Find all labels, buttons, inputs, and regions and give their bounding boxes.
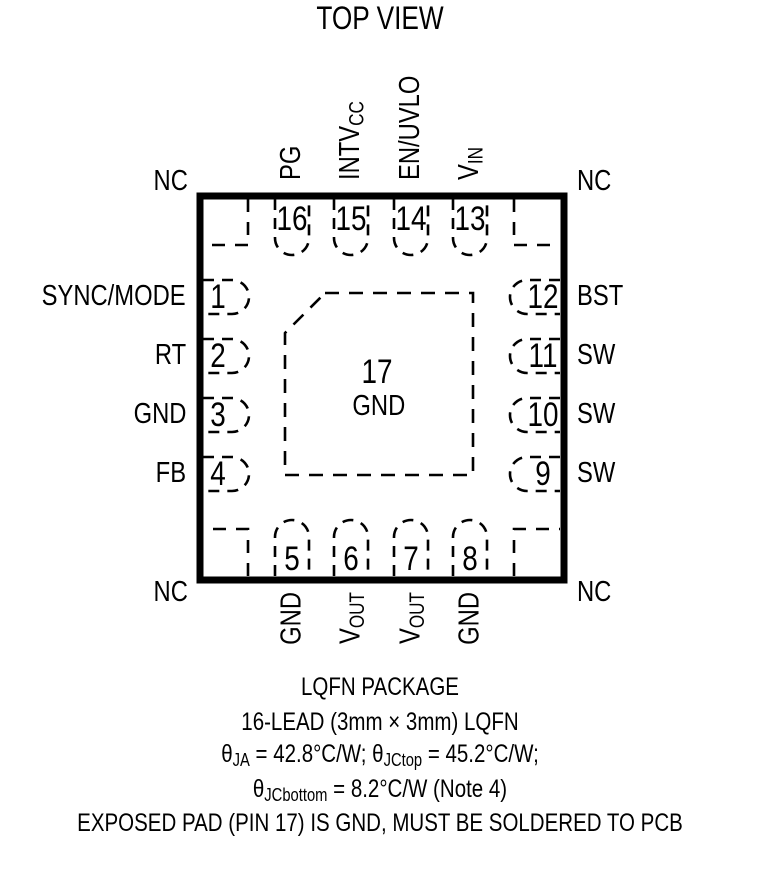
pin-11-label: SW xyxy=(577,341,615,370)
pin-6-label: VOUT xyxy=(336,592,365,644)
pin-13-label: VIN xyxy=(455,147,484,180)
package-description: 16-LEAD (3mm × 3mm) LQFN xyxy=(68,710,691,735)
pin-4-number: 4 xyxy=(202,457,235,491)
pin-16-number: 16 xyxy=(276,202,309,236)
pin-12-label: BST xyxy=(577,282,623,311)
pin-12-number: 12 xyxy=(527,280,560,314)
pin-15-number: 15 xyxy=(335,202,368,236)
pin-10-label: SW xyxy=(577,400,615,429)
pin-9-number: 9 xyxy=(527,457,560,491)
pin-2-label: RT xyxy=(155,341,186,370)
exposed-pad-note: EXPOSED PAD (PIN 17) IS GND, MUST BE SOL… xyxy=(68,811,691,836)
corner-pad-bottom-right xyxy=(514,529,560,576)
pin-16-label: PG xyxy=(277,146,306,180)
pin-11-number: 11 xyxy=(527,339,560,373)
pin-7-number: 7 xyxy=(395,542,428,576)
package-name: LQFN PACKAGE xyxy=(68,675,691,700)
pin-3-number: 3 xyxy=(202,398,235,432)
pin-5-number: 5 xyxy=(276,542,309,576)
corner-pad-top-right xyxy=(514,199,560,245)
exposed-pad-label: GND xyxy=(352,392,401,421)
pin-10-number: 10 xyxy=(527,398,560,432)
pin-6-number: 6 xyxy=(335,542,368,576)
corner-pad-top-left xyxy=(203,199,248,245)
pin-2-number: 2 xyxy=(202,339,235,373)
pin-5-label: GND xyxy=(277,592,306,645)
pin-14-number: 14 xyxy=(395,202,428,236)
pin-8-label: GND xyxy=(455,592,484,645)
top-view-title: TOP VIEW xyxy=(68,2,691,34)
pin-15-label: INTVCC xyxy=(336,101,365,180)
corner-label-nc-bottom-right: NC xyxy=(577,578,611,607)
pin-14-label: EN/UVLO xyxy=(396,76,425,180)
thermal-spec-line-1: θJA = 42.8°C/W; θJCtop = 45.2°C/W; xyxy=(68,742,691,767)
pin-1-number: 1 xyxy=(202,280,235,314)
thermal-spec-line-2: θJCbottom = 8.2°C/W (Note 4) xyxy=(68,777,691,802)
corner-label-nc-bottom-left: NC xyxy=(154,578,188,607)
pin-7-label: VOUT xyxy=(396,592,425,644)
corner-pad-bottom-left xyxy=(203,529,248,576)
corner-label-nc-top-left: NC xyxy=(154,167,188,196)
corner-label-nc-top-right: NC xyxy=(577,167,611,196)
pin-3-label: GND xyxy=(133,400,186,429)
exposed-pad-number: 17 xyxy=(361,355,394,389)
pinout-figure: TOP VIEW NC NC NC NC 1 2 3 4 12 11 10 9 … xyxy=(0,0,760,880)
pin-4-label: FB xyxy=(156,459,186,488)
pin-13-number: 13 xyxy=(454,202,487,236)
pin-1-label: SYNC/MODE xyxy=(42,282,186,311)
pin-9-label: SW xyxy=(577,459,615,488)
pin-8-number: 8 xyxy=(454,542,487,576)
